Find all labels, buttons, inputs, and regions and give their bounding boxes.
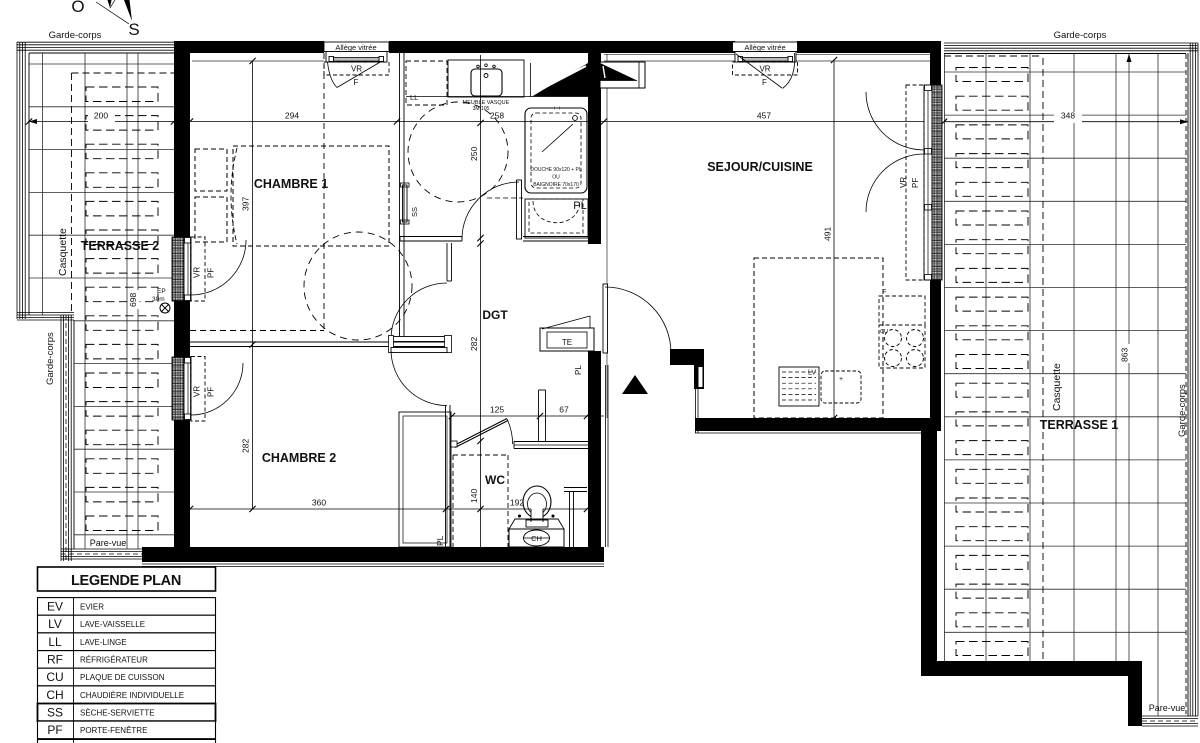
svg-text:VR: VR [193,267,202,278]
svg-text:O: O [71,0,84,16]
svg-text:PL: PL [435,535,445,546]
svg-text:397: 397 [241,197,251,211]
svg-text:PL: PL [574,365,583,375]
svg-text:PF: PF [47,723,62,737]
svg-text:EVIER: EVIER [80,603,104,612]
svg-text:LV: LV [48,617,62,631]
svg-text:Casquette: Casquette [1051,363,1063,411]
svg-text:CHAMBRE 1: CHAMBRE 1 [254,177,328,191]
svg-text:282: 282 [241,439,251,453]
svg-text:VR: VR [193,386,202,397]
svg-text:282: 282 [469,337,479,351]
svg-text:Allège vitrée: Allège vitrée [335,43,376,52]
svg-text:TE: TE [562,338,572,347]
svg-text:LEGENDE PLAN: LEGENDE PLAN [71,573,181,589]
svg-text:360: 360 [312,498,326,508]
svg-text:Garde-corps: Garde-corps [1177,384,1188,437]
svg-text:TERRASSE 2: TERRASSE 2 [81,239,160,253]
svg-text:LAVE-VAISSELLE: LAVE-VAISSELLE [80,620,145,629]
svg-text:WC: WC [485,473,505,487]
svg-text:CH: CH [46,688,63,702]
svg-text:250: 250 [469,147,479,161]
svg-text:Pare-vue: Pare-vue [1149,703,1186,713]
svg-text:348: 348 [1061,111,1075,121]
svg-text:698: 698 [128,293,138,307]
svg-text:258: 258 [490,111,504,121]
svg-text:VR: VR [351,65,362,74]
svg-text:863: 863 [1120,348,1130,362]
svg-text:30m: 30m [152,296,165,303]
svg-text:PLAQUE DE CUISSON: PLAQUE DE CUISSON [80,673,165,682]
svg-text:SS: SS [410,207,419,217]
svg-text:BAIGNOIRE 70x170: BAIGNOIRE 70x170 [533,182,579,188]
svg-text:OU: OU [552,175,560,181]
svg-text:491: 491 [823,227,833,241]
svg-text:PF: PF [207,268,216,278]
svg-text:TERRASSE 1: TERRASSE 1 [1040,418,1119,432]
svg-text:F: F [882,289,886,296]
svg-text:DOUCHE 90x120 + PL: DOUCHE 90x120 + PL [530,167,581,173]
svg-text:457: 457 [757,111,771,121]
svg-text:SS: SS [47,706,63,720]
svg-text:294: 294 [285,111,299,121]
svg-text:Garde-corps: Garde-corps [45,332,56,385]
svg-text:LV: LV [808,370,816,377]
svg-text:192: 192 [510,498,524,508]
svg-text:PL: PL [573,200,586,212]
svg-text:125: 125 [490,405,504,415]
svg-text:Pare-vue: Pare-vue [90,538,127,548]
svg-text:VR: VR [899,177,908,188]
svg-text:PF: PF [911,178,920,188]
svg-text:LL: LL [410,93,418,102]
svg-text:Allège vitrée: Allège vitrée [744,43,785,52]
svg-text:SÈCHE-SERVIETTE: SÈCHE-SERVIETTE [80,709,155,718]
svg-text:67: 67 [559,405,569,415]
svg-text:LAVE-LINGE: LAVE-LINGE [80,638,127,647]
svg-text:CH: CH [531,534,542,543]
svg-text:EV: EV [47,600,63,614]
svg-text:DGT: DGT [482,308,508,322]
svg-text:RF: RF [47,653,63,667]
svg-text:CU: CU [46,670,63,684]
svg-text:PF: PF [207,387,216,397]
svg-text:200: 200 [94,111,108,121]
svg-text:PORTE-FENÊTRE: PORTE-FENÊTRE [80,726,147,735]
svg-text:140: 140 [469,489,479,503]
svg-text:F: F [762,78,767,87]
svg-text:EP: EP [157,288,166,295]
svg-text:S: S [128,20,139,39]
svg-text:RÉFRIGÉRATEUR: RÉFRIGÉRATEUR [80,656,148,665]
svg-text:Garde-corps: Garde-corps [1054,30,1107,41]
svg-text:CHAUDIÈRE INDIVIDUELLE: CHAUDIÈRE INDIVIDUELLE [80,691,184,700]
svg-text:SEJOUR/CUISINE: SEJOUR/CUISINE [707,160,813,174]
svg-text:LL: LL [48,635,62,649]
svg-text:CHAMBRE 2: CHAMBRE 2 [262,451,336,465]
svg-text:+: + [839,376,843,383]
svg-text:Casquette: Casquette [57,228,69,276]
svg-text:F: F [354,78,359,87]
svg-text:Garde-corps: Garde-corps [49,30,102,41]
svg-text:+ +: + + [553,106,562,112]
